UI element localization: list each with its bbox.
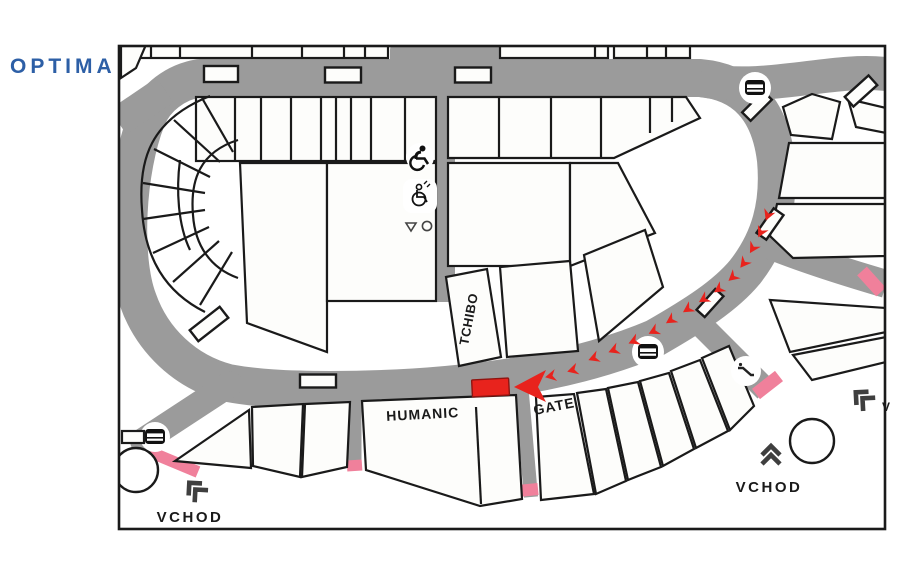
aisle-b xyxy=(522,394,531,497)
entrance-chevron-bottom-left xyxy=(183,477,208,502)
label-v-partial: V xyxy=(882,400,890,414)
column-circle-bottom-right xyxy=(790,419,834,463)
mall-floor-plan-map: TCHIBO HUMANIC GATE VCHOD VCHOD V xyxy=(0,0,900,575)
entrance-chevron-bottom-right xyxy=(762,446,780,464)
column-circle-bottom-left xyxy=(114,448,158,492)
accessible-wc-icon xyxy=(403,179,437,213)
stairs-icon-bottom-left xyxy=(122,422,170,452)
wheelchair-person-icon xyxy=(406,143,434,171)
top-right-corridor xyxy=(700,73,886,83)
highlighted-store xyxy=(472,378,510,397)
entrance-chevron-right-edge xyxy=(850,386,875,411)
mall-map-page: OPTIMA xyxy=(0,0,900,575)
label-vchod-right: VCHOD xyxy=(736,479,803,496)
stairs-icon-top-right xyxy=(739,72,771,104)
label-vchod-left: VCHOD xyxy=(157,509,224,526)
optima-logo: OPTIMA xyxy=(10,55,116,79)
entrance-stripe-aisle-a xyxy=(347,465,362,466)
escalator-icon xyxy=(731,356,761,386)
stairs-icon-center xyxy=(632,336,664,368)
